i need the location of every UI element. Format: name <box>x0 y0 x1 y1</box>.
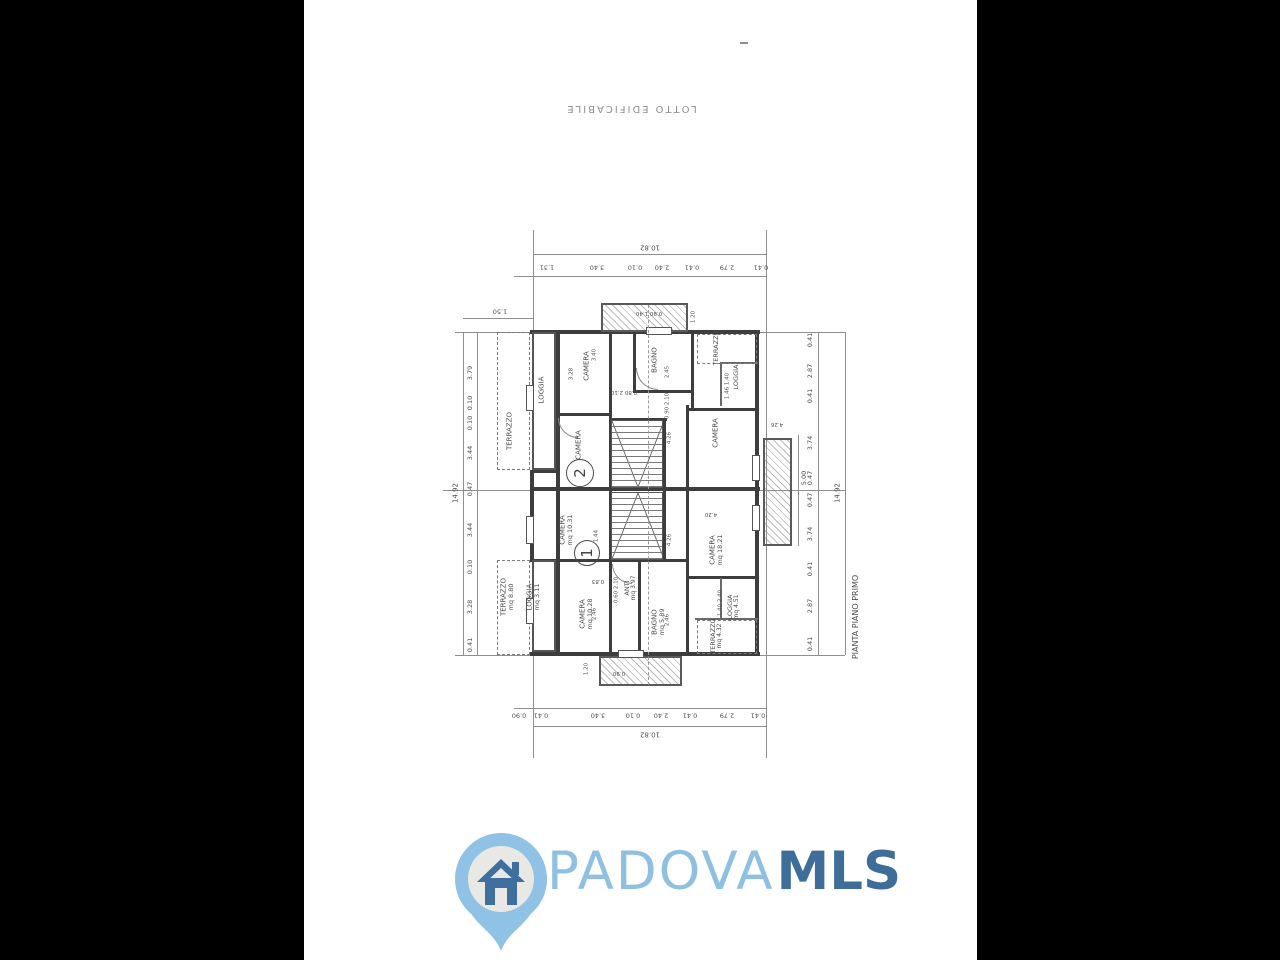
dim-label: 0.41 <box>685 264 699 271</box>
unit-number: 2 <box>571 468 589 478</box>
room-area: mq 8.80 <box>508 584 515 611</box>
room-area: mq 4.51 <box>734 595 740 620</box>
top-total-dim-line <box>533 254 766 255</box>
dim-label: 2.40 <box>655 264 669 271</box>
small-dim-label: 1.20 <box>584 663 590 675</box>
room-label: LOGGIA <box>539 377 546 404</box>
left-total-dim-line <box>463 332 464 655</box>
small-dim-label: 1.44 <box>594 530 600 542</box>
dim-label: 0.41 <box>807 389 814 403</box>
terrace-outline <box>697 334 757 364</box>
offset-dim-line <box>463 318 533 319</box>
dim-label: 2.87 <box>807 599 814 613</box>
window <box>526 385 534 411</box>
dim-label: 3.44 <box>467 446 474 460</box>
interior-wall <box>609 562 612 652</box>
small-dim-label: 0.80 2.10 <box>611 388 637 394</box>
room-area: mq 10.31 <box>567 514 574 545</box>
room-area: mq 3.97 <box>631 576 637 601</box>
dim-total: 14.92 <box>453 483 460 503</box>
room-label: CAMERA <box>576 430 583 460</box>
dim-label: 0.41 <box>467 638 474 652</box>
unit-number-badge: 2 <box>566 459 594 487</box>
bottom-seg-dim-line <box>514 708 766 709</box>
left-black-bar <box>0 0 304 960</box>
dim-label: 3.74 <box>807 436 814 450</box>
interior-wall <box>686 405 689 655</box>
dim-label: 3.74 <box>807 527 814 541</box>
dim-total: 10.82 <box>640 731 660 738</box>
interior-wall <box>633 390 693 393</box>
thin-wall <box>720 362 722 406</box>
window <box>526 516 534 544</box>
dim-label: 0.41 <box>683 712 697 719</box>
dim-label: 0.41 <box>807 562 814 576</box>
terrace-outline <box>697 620 757 654</box>
dim-label: 0.41 <box>807 333 814 347</box>
small-dim-label: 0.83 <box>592 577 604 583</box>
dim-label: 3.79 <box>467 366 474 380</box>
logo-text-mls: MLS <box>777 845 902 898</box>
extension-line <box>758 332 845 333</box>
dim-label: 5.00 <box>801 471 808 485</box>
small-dim-label: 2.45 <box>665 366 671 378</box>
small-dim-label: 1.46 1.40 <box>725 373 731 399</box>
plan-title: PIANTA PIANO PRIMO <box>852 575 860 659</box>
right-black-bar <box>977 0 1280 960</box>
small-dim-label: 1.20 <box>691 311 697 323</box>
dim-label: 3.40 <box>590 264 604 271</box>
dim-label: 1.50 <box>493 308 507 315</box>
small-dim-label: 3.28 <box>569 368 575 380</box>
bottom-total-dim-line <box>533 726 766 727</box>
extension-line <box>758 655 845 656</box>
dim-label: 0.47 <box>807 493 814 507</box>
sheet-title: LOTTO EDIFICABILE <box>565 103 696 113</box>
dim-label: 0.10 <box>467 416 474 430</box>
dim-label: 3.44 <box>467 523 474 537</box>
interior-wall <box>691 332 694 408</box>
left-seg-dim-line <box>477 332 478 655</box>
window <box>752 455 760 481</box>
dim-label: 0.10 <box>467 560 474 574</box>
outer-wall-left <box>556 330 560 655</box>
interior-wall <box>686 576 758 579</box>
room-label: BAGNO <box>652 347 659 373</box>
balcony-right <box>763 438 792 546</box>
dim-label: 3.28 <box>467 600 474 614</box>
dim-label: 0.47 <box>467 482 474 496</box>
small-dim-label: 0.90 2.10 <box>665 393 671 419</box>
dim-label: 0.41 <box>751 712 765 719</box>
dim-label: 0.41 <box>754 264 768 271</box>
small-dim-label: 1.40 2.40 <box>718 590 724 616</box>
small-dim-label: 3.40 <box>592 349 598 361</box>
inner-dim-line <box>798 435 799 546</box>
window <box>752 505 760 531</box>
interior-wall <box>686 408 758 411</box>
small-dim-label: 4.26 <box>771 420 783 426</box>
small-dim-label: 0.60 2.10 <box>614 577 620 603</box>
window <box>618 650 644 658</box>
dim-label: 0.41 <box>807 637 814 651</box>
stair-flight-lower <box>611 492 663 560</box>
section-centerline <box>648 305 649 685</box>
small-dim-label: 0.90 <box>613 669 625 675</box>
small-dim-label: 4.20 <box>705 510 717 516</box>
dim-label: 2.79 <box>720 712 734 719</box>
room-label: TERRAZZO <box>507 412 514 450</box>
dim-label: 0.90 <box>512 712 526 719</box>
unit-number: 1 <box>578 548 596 558</box>
room-label: CAMERA <box>584 351 591 381</box>
extension-line <box>455 655 533 656</box>
interior-wall <box>638 562 641 652</box>
right-total-dim-line <box>845 332 846 655</box>
interior-wall <box>633 332 636 392</box>
window <box>646 327 672 335</box>
dim-label: 1.31 <box>540 264 554 271</box>
unit-number-badge: 1 <box>574 540 600 566</box>
balcony-bottom <box>599 656 682 686</box>
bump-wall <box>530 470 558 473</box>
dim-label: 3.40 <box>591 712 605 719</box>
small-dim-label: 2.46 <box>592 608 598 620</box>
interior-wall <box>609 332 612 418</box>
dim-total: 10.82 <box>640 244 660 251</box>
room-label: LOGGIA <box>733 365 740 390</box>
top-seg-dim-line <box>514 276 766 277</box>
dim-label: 0.10 <box>467 396 474 410</box>
small-dim-label: 2.46 <box>665 614 671 626</box>
room-area: mq 3.11 <box>534 584 541 611</box>
floor-plan: LOTTO EDIFICABILEPIANTA PIANO PRIMOTERRA… <box>304 0 977 960</box>
logo-wordmark: PADOVA MLS <box>547 845 901 898</box>
padova-mls-logo: PADOVA MLS <box>451 829 871 959</box>
room-area: mq 18.21 <box>717 534 724 565</box>
room-area: mq 4.32 <box>717 624 723 649</box>
small-dim-label: 4.26 <box>667 432 673 444</box>
stair-flight-upper <box>611 420 663 488</box>
balcony-top <box>601 303 688 332</box>
dim-total: 14.92 <box>835 483 842 503</box>
outer-wall-right <box>755 330 759 656</box>
dim-label: 0.41 <box>534 712 548 719</box>
room-label: CAMERA <box>713 418 720 448</box>
dim-label: 2.87 <box>807 364 814 378</box>
map-pin-house-icon <box>451 829 551 955</box>
scanned-floor-plan-page: LOTTO EDIFICABILEPIANTA PIANO PRIMOTERRA… <box>0 0 1280 960</box>
small-dim-label: 0.90 1.40 <box>636 309 662 315</box>
dim-label: 2.79 <box>720 264 734 271</box>
scan-mark <box>740 42 748 44</box>
dim-label: 0.10 <box>626 712 640 719</box>
dim-label: 2.40 <box>654 712 668 719</box>
interior-wall <box>556 413 611 416</box>
logo-text-padova: PADOVA <box>547 845 775 898</box>
right-seg-dim-line <box>818 332 819 655</box>
small-dim-label: 4.26 <box>667 534 673 546</box>
dim-label: 0.10 <box>628 264 642 271</box>
room-label: TERRAZZO <box>713 330 720 365</box>
